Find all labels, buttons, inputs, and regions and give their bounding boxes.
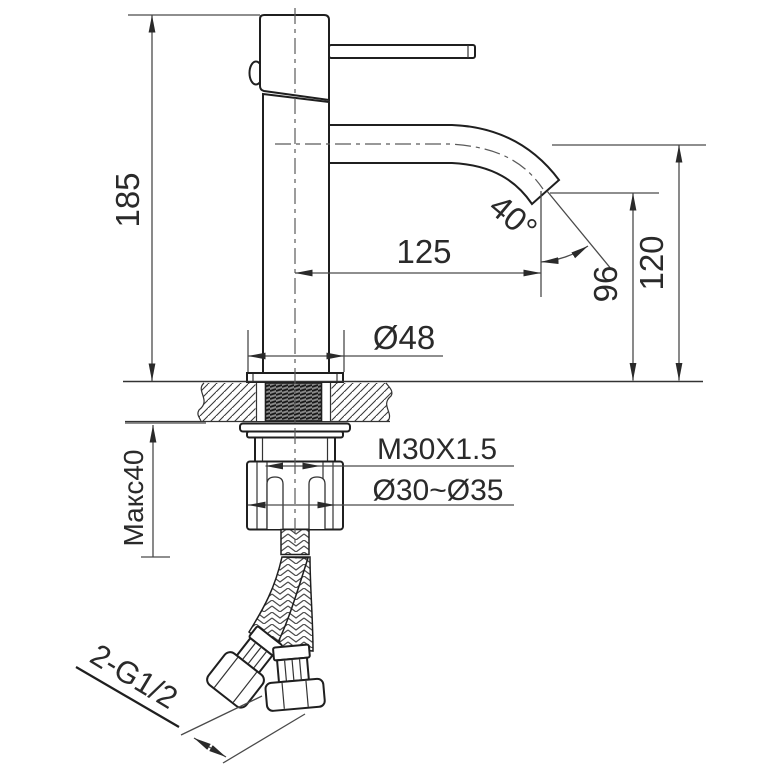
dim-label-max40: Макс40 [118,450,149,547]
dimension-max-thickness: Макс40 [118,423,206,557]
dim-label-120: 120 [633,235,670,290]
dimension-spout-height: 120 [552,145,706,381]
dim-label-d48: Ø48 [373,319,435,356]
faucet-body [263,94,329,373]
dimension-spout-angle: 40° [482,187,612,270]
faucet-drawing [123,8,703,711]
technical-drawing-page: 185 125 40° 96 120 [0,0,764,773]
dim-label-125: 125 [396,233,451,270]
threaded-shank [266,383,322,421]
supply-hoses [204,530,325,712]
dim-label-g12: 2-G1/2 [84,637,183,716]
handle-knurled-cap [260,15,329,100]
dim-label-hole: Ø30~Ø35 [373,474,504,507]
nut-slot [309,477,325,529]
dim-label-96: 96 [587,266,624,303]
faucet-spout [329,125,559,204]
technical-drawing-canvas: 185 125 40° 96 120 [0,0,764,773]
dim-label-185: 185 [109,172,146,227]
handle-lever [329,45,475,58]
nut-slot [267,477,283,529]
hose-hex-nut-right [265,678,325,711]
countertop-section [123,382,703,422]
dim-label-m30: M30X1.5 [377,433,497,466]
dimension-total-height: 185 [109,15,260,381]
